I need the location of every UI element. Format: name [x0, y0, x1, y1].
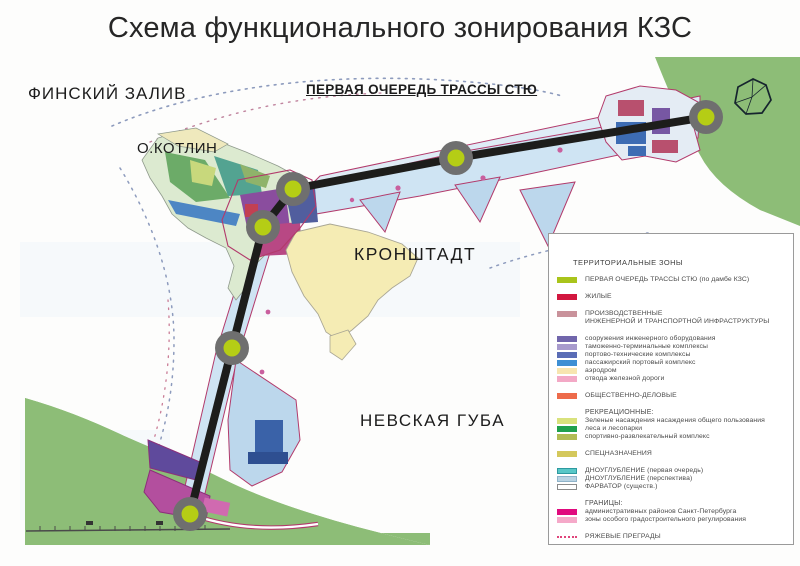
label-kronstadt: КРОНШТАДТ	[354, 244, 476, 265]
legend-group: СПЕЦНАЗНАЧЕНИЯ	[557, 450, 793, 458]
legend-item-label: таможенно-терминальные комплексы	[585, 343, 708, 350]
legend-item: портово-технические комплексы	[557, 351, 793, 359]
legend-group: ПЕРВАЯ ОЧЕРЕДЬ ТРАССЫ СТЮ (по дамбе КЗС)	[557, 276, 793, 284]
legend-item-label: пассажирский портовый комплекс	[585, 359, 695, 366]
route-node	[689, 100, 723, 134]
legend-item-label: Зеленые насаждения насаждения общего пол…	[585, 417, 765, 424]
route-node	[276, 172, 310, 206]
color-swatch	[557, 376, 577, 382]
route-node	[173, 497, 207, 531]
label-gulf-of-finland: ФИНСКИЙ ЗАЛИВ	[28, 84, 186, 104]
legend-item: зоны особого градостроительного регулиро…	[557, 516, 793, 524]
color-swatch	[557, 451, 577, 457]
legend-item: РЯЖЕВЫЕ ПРЕГРАДЫ	[557, 533, 793, 541]
dotted-swatch	[557, 536, 577, 538]
legend-item-label: ПРОИЗВОДСТВЕННЫЕ	[585, 310, 662, 317]
legend-item: ОБЩЕСТВЕННО-ДЕЛОВЫЕ	[557, 392, 793, 400]
legend-group: ОБЩЕСТВЕННО-ДЕЛОВЫЕ	[557, 392, 793, 400]
legend-item-label: ИНЖЕНЕРНОЙ И ТРАНСПОРТНОЙ ИНФРАСТРУКТУРЫ	[585, 318, 769, 325]
legend-item: аэродром	[557, 367, 793, 375]
color-swatch	[557, 277, 577, 283]
color-swatch	[557, 434, 577, 440]
color-swatch	[557, 509, 577, 515]
legend-item-label: ФАРВАТОР (существ.)	[585, 483, 657, 490]
color-swatch	[557, 294, 577, 300]
color-swatch	[557, 517, 577, 523]
legend-item-label: портово-технические комплексы	[585, 351, 690, 358]
legend-item-label: ДНОУГЛУБЛЕНИЕ (перспектива)	[585, 475, 692, 482]
color-swatch	[557, 344, 577, 350]
legend-item: спортивно-развлекательный комплекс	[557, 433, 793, 441]
page-title: Схема функционального зонирования КЗС	[0, 12, 800, 45]
color-swatch	[557, 418, 577, 424]
legend-panel: ТЕРРИТОРИАЛЬНЫЕ ЗОНЫ ПЕРВАЯ ОЧЕРЕДЬ ТРАС…	[548, 233, 794, 545]
legend-group: ГРАНИЦЫ:административных районов Санкт-П…	[557, 500, 793, 524]
legend-title: ТЕРРИТОРИАЛЬНЫЕ ЗОНЫ	[573, 258, 793, 267]
legend-item-label: ПЕРВАЯ ОЧЕРЕДЬ ТРАССЫ СТЮ (по дамбе КЗС)	[585, 276, 749, 283]
legend-item: ДНОУГЛУБЛЕНИЕ (перспектива)	[557, 475, 793, 483]
legend-item: Зеленые насаждения насаждения общего пол…	[557, 417, 793, 425]
legend-item: ИНЖЕНЕРНОЙ И ТРАНСПОРТНОЙ ИНФРАСТРУКТУРЫ	[557, 318, 793, 326]
color-swatch	[557, 468, 577, 474]
legend-item-label: ДНОУГЛУБЛЕНИЕ (первая очередь)	[585, 467, 703, 474]
color-swatch	[557, 311, 577, 317]
route-node	[246, 210, 280, 244]
railway-station-mark	[86, 521, 93, 525]
legend-item-label: административных районов Санкт-Петербург…	[585, 508, 736, 515]
route-node	[215, 331, 249, 365]
legend-item-label: отвода железной дороги	[585, 375, 664, 382]
legend-group-header: РЕКРЕАЦИОННЫЕ:	[585, 409, 793, 417]
color-swatch	[557, 393, 577, 399]
legend-item-label: леса и лесопарки	[585, 425, 642, 432]
color-swatch	[557, 352, 577, 358]
color-swatch	[557, 360, 577, 366]
color-swatch	[557, 336, 577, 342]
legend-group: ЖИЛЫЕ	[557, 293, 793, 301]
railway-station-mark	[156, 521, 163, 525]
legend-item: ПЕРВАЯ ОЧЕРЕДЬ ТРАССЫ СТЮ (по дамбе КЗС)	[557, 276, 793, 284]
legend-group: РЕКРЕАЦИОННЫЕ:Зеленые насаждения насажде…	[557, 409, 793, 441]
color-swatch	[557, 484, 577, 490]
legend-item: административных районов Санкт-Петербург…	[557, 508, 793, 516]
legend-item: ПРОИЗВОДСТВЕННЫЕ	[557, 310, 793, 318]
legend-group: РЯЖЕВЫЕ ПРЕГРАДЫ	[557, 533, 793, 541]
legend-item-label: спортивно-развлекательный комплекс	[585, 433, 710, 440]
legend-items: ПЕРВАЯ ОЧЕРЕДЬ ТРАССЫ СТЮ (по дамбе КЗС)…	[557, 276, 793, 541]
label-kotlin-island: О.КОТЛИН	[137, 140, 217, 157]
legend-item-label: СПЕЦНАЗНАЧЕНИЯ	[585, 450, 652, 457]
legend-item: пассажирский портовый комплекс	[557, 359, 793, 367]
legend-group-header: ГРАНИЦЫ:	[585, 500, 793, 508]
legend-item: отвода железной дороги	[557, 375, 793, 383]
label-first-stage-route: ПЕРВАЯ ОЧЕРЕДЬ ТРАССЫ СТЮ	[306, 82, 537, 97]
legend-item-label: РЯЖЕВЫЕ ПРЕГРАДЫ	[585, 533, 661, 540]
legend-item: ЖИЛЫЕ	[557, 293, 793, 301]
color-swatch	[557, 476, 577, 482]
color-swatch	[557, 426, 577, 432]
legend-group: ДНОУГЛУБЛЕНИЕ (первая очередь)ДНОУГЛУБЛЕ…	[557, 467, 793, 491]
color-swatch	[557, 368, 577, 374]
legend-item: таможенно-терминальные комплексы	[557, 343, 793, 351]
legend-item-label: аэродром	[585, 367, 617, 374]
legend-item: леса и лесопарки	[557, 425, 793, 433]
legend-group: сооружения инженерного оборудованиятамож…	[557, 335, 793, 383]
legend-item-label: зоны особого градостроительного регулиро…	[585, 516, 746, 523]
legend-item-label: ЖИЛЫЕ	[585, 293, 612, 300]
legend-item-label: сооружения инженерного оборудования	[585, 335, 716, 342]
legend-item: СПЕЦНАЗНАЧЕНИЯ	[557, 450, 793, 458]
route-node	[439, 141, 473, 175]
legend-item: ФАРВАТОР (существ.)	[557, 483, 793, 491]
legend-item: сооружения инженерного оборудования	[557, 335, 793, 343]
legend-item: ДНОУГЛУБЛЕНИЕ (первая очередь)	[557, 467, 793, 475]
legend-item-label: ОБЩЕСТВЕННО-ДЕЛОВЫЕ	[585, 392, 677, 399]
label-neva-bay: НЕВСКАЯ ГУБА	[360, 411, 505, 431]
legend-group: ПРОИЗВОДСТВЕННЫЕИНЖЕНЕРНОЙ И ТРАНСПОРТНО…	[557, 310, 793, 326]
